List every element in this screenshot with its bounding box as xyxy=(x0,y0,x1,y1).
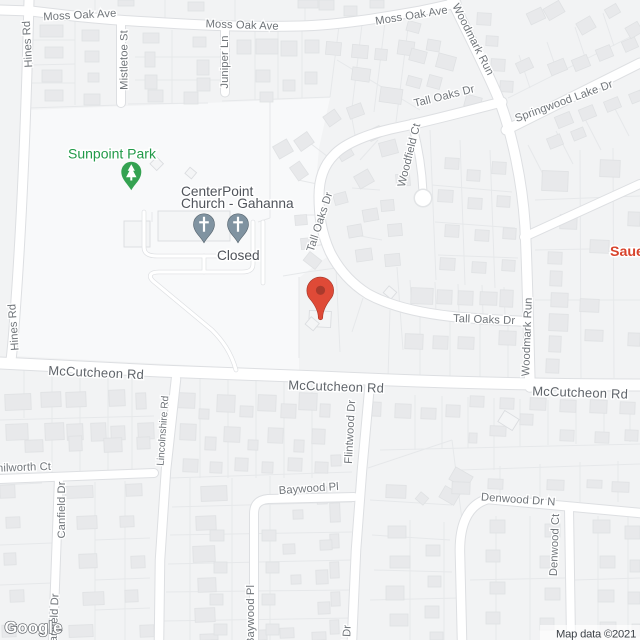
svg-text:Baywood Pl: Baywood Pl xyxy=(245,585,257,640)
svg-text:Closed: Closed xyxy=(217,248,260,263)
svg-text:Mistletoe St: Mistletoe St xyxy=(119,29,131,89)
svg-text:Denwood Ct: Denwood Ct xyxy=(548,513,562,577)
svg-text:Flintwood Dr: Flintwood Dr xyxy=(339,625,353,640)
svg-text:Google: Google xyxy=(5,619,63,637)
svg-text:Map data ©2021: Map data ©2021 xyxy=(556,629,636,640)
svg-text:Canfield Dr: Canfield Dr xyxy=(56,481,68,538)
svg-text:Juniper Ln: Juniper Ln xyxy=(219,35,231,88)
svg-text:Chilworth Ct: Chilworth Ct xyxy=(0,461,52,475)
svg-text:Tall Oaks Dr: Tall Oaks Dr xyxy=(453,313,516,327)
svg-text:Sunpoint Park: Sunpoint Park xyxy=(68,146,157,162)
svg-text:Hines Rd: Hines Rd xyxy=(21,20,35,67)
svg-text:Saue: Saue xyxy=(610,244,640,260)
svg-text:Moss Oak Ave: Moss Oak Ave xyxy=(205,18,278,33)
svg-text:Church - Gahanna: Church - Gahanna xyxy=(181,196,294,211)
